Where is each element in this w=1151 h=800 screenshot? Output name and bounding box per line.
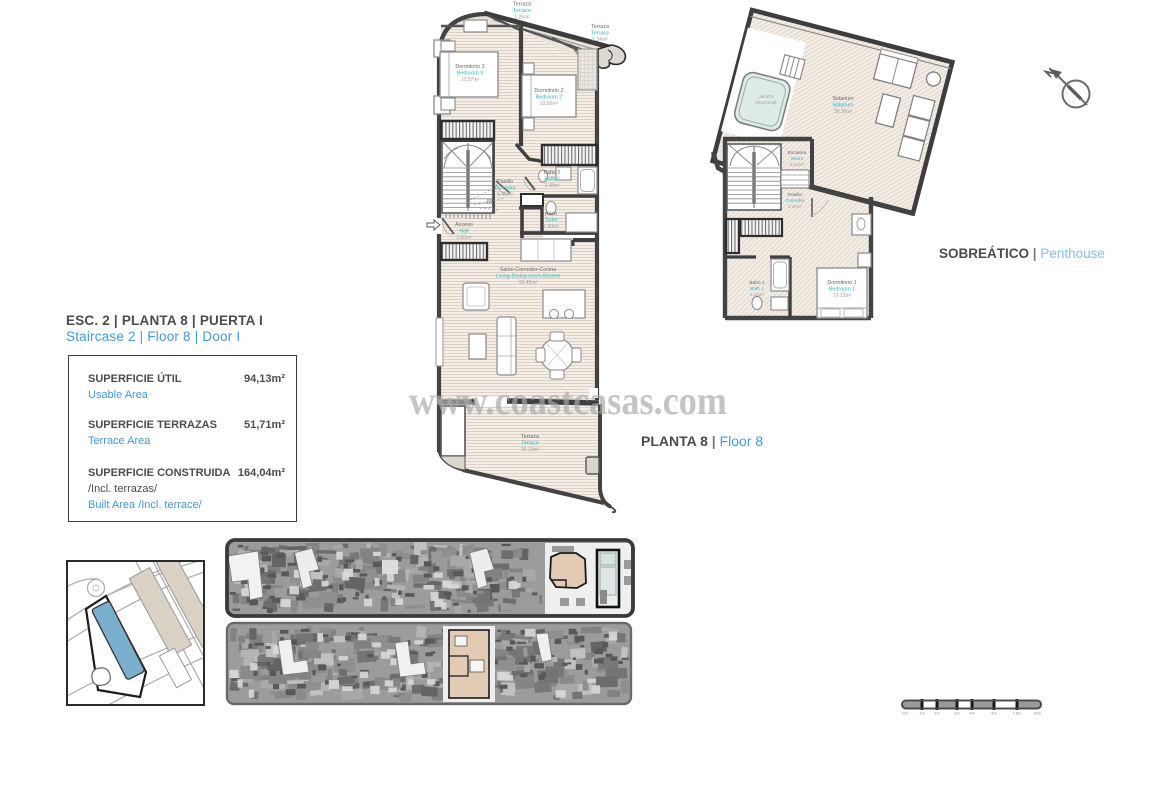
svg-text:Dormitorio 2: Dormitorio 2 [534,88,563,94]
svg-text:Living-Dining room-Kitchen: Living-Dining room-Kitchen [496,273,561,279]
svg-text:5.45m²: 5.45m² [497,192,513,198]
svg-text:1.26m²: 1.26m² [514,14,530,20]
svg-text:Corredor: Corredor [494,185,515,191]
svg-text:3.04m²: 3.04m² [790,162,805,167]
svg-text:Acceso: Acceso [455,222,473,228]
svg-text:Aseo: Aseo [545,211,557,217]
svg-text:5m: 5m [991,711,997,716]
svg-text:Baño 2: Baño 2 [543,170,560,176]
svg-text:2.40m²: 2.40m² [543,224,559,230]
svg-text:Dormitorio 3: Dormitorio 3 [455,64,484,70]
svg-text:Toilet: Toilet [545,217,558,223]
svg-text:Terraza: Terraza [521,434,539,440]
svg-text:(Opcional): (Opcional) [755,100,777,105]
svg-text:1m: 1m [919,711,925,716]
svg-text:Pasillo: Pasillo [497,179,513,185]
svg-text:1.29m²: 1.29m² [788,204,803,209]
svg-text:2m: 2m [934,711,940,716]
svg-text:Baño 1: Baño 1 [749,280,765,286]
svg-text:Terrace: Terrace [521,440,539,446]
svg-text:Terrace: Terrace [591,30,609,36]
svg-text:10m: 10m [1033,711,1041,716]
svg-text:0m: 0m [902,711,908,716]
svg-text:28.49m²: 28.49m² [519,280,538,286]
svg-text:16.13m²: 16.13m² [521,447,540,453]
svg-text:Jacuzzi: Jacuzzi [758,94,773,99]
svg-text:10.97m²: 10.97m² [461,77,480,83]
svg-text:Terraza: Terraza [513,2,531,8]
svg-text:39.30m²: 39.30m² [834,109,853,115]
svg-text:6.18m²: 6.18m² [750,292,765,297]
svg-text:Terrace: Terrace [513,8,531,14]
svg-text:Hall: Hall [459,228,468,234]
svg-text:Bedroom 1: Bedroom 1 [829,286,855,292]
svg-text:3.48m²: 3.48m² [544,183,560,189]
svg-text:Terraza: Terraza [591,24,609,30]
svg-text:17.12m²: 17.12m² [833,293,852,299]
svg-text:Dormitorio 1: Dormitorio 1 [827,280,856,286]
svg-text:7.5m: 7.5m [1013,711,1023,716]
svg-text:3.60m²: 3.60m² [456,235,472,241]
svg-text:M: M [487,199,492,205]
svg-text:5.34m²: 5.34m² [592,37,608,43]
svg-text:Solarium: Solarium [832,102,854,108]
svg-text:Solarium: Solarium [832,96,854,102]
svg-text:4m: 4m [969,711,975,716]
svg-text:www.coastcasas.com: www.coastcasas.com [409,378,727,423]
svg-text:3m: 3m [954,711,960,716]
svg-text:Bedroom 2: Bedroom 2 [536,94,562,100]
svg-text:Bath 2: Bath 2 [544,176,560,182]
svg-text:Bedroom 3: Bedroom 3 [457,70,483,76]
svg-text:Salón-Comedor-Cocina: Salón-Comedor-Cocina [500,267,556,273]
svg-text:Escalera: Escalera [788,150,807,156]
svg-text:10.60m²: 10.60m² [540,101,559,107]
svg-text:Pasillo: Pasillo [788,192,802,198]
